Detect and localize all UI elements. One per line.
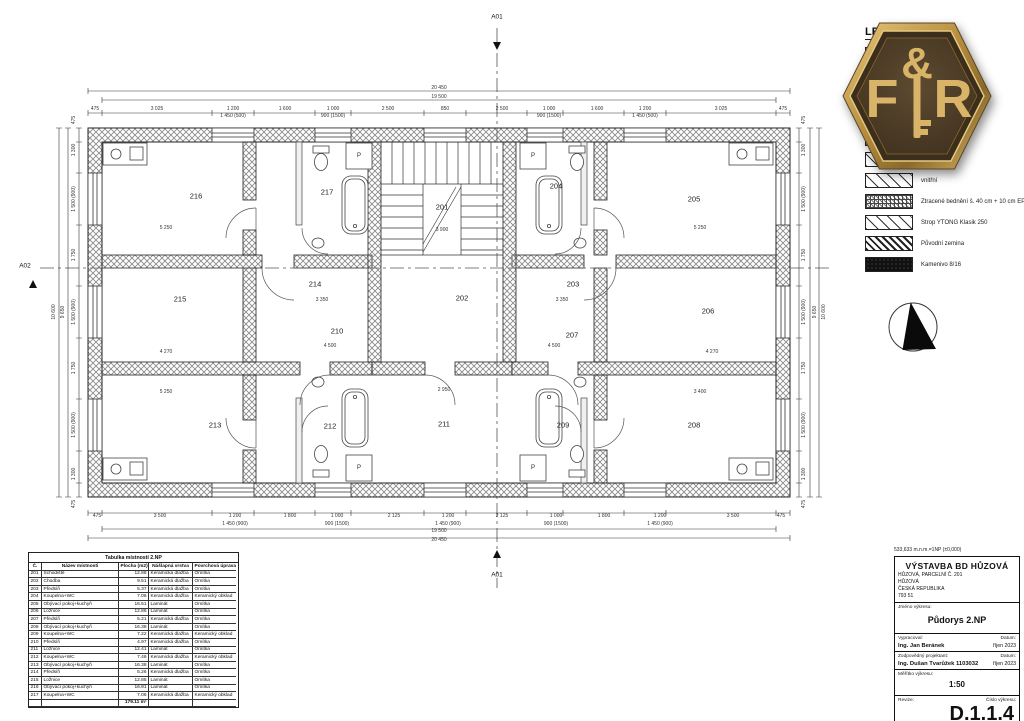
room-number-label: 214 [309,280,322,289]
hatch-swatch [865,215,913,230]
dimension-label: 1 500 (900) [71,412,77,438]
room-number-label: 203 [567,280,580,289]
dimension-label: 1 750 [801,362,807,375]
dimension-label: 1 300 [71,468,77,481]
dimension-label: 3 900 [436,227,449,233]
cell-wall-finish: Keramický obklad [193,692,236,700]
cell-floor-layer: Laminát [149,685,193,693]
washer-label: P [357,465,361,471]
table-row: 205 Obývací pokoj+kuchyň 16.51 Laminát O… [29,601,238,609]
logo-letter-r: R [934,69,973,129]
table-row: 211 Ložnice 12.41 Laminát Omítka [29,647,238,655]
room-number-label: 206 [702,307,715,316]
total-area: 179.11 m² [119,700,149,708]
logo-letter-f: F [866,69,899,129]
author-label: Vypracoval: [898,636,923,641]
drawing-page: 2162172012042052152142022032062102072132… [0,0,1024,721]
cell-number: 203 [29,586,42,594]
dimension-label: 1 600 [591,106,604,112]
washer-label: P [531,153,535,159]
cell-floor-layer: Keramická dlažba [149,654,193,662]
room-number-label: 201 [436,203,449,212]
dimension-label: 475 [777,513,785,519]
dimension-label: 3 350 [316,297,329,303]
cell-wall-finish: Omítka [193,647,236,655]
table-row: 208 Obývací pokoj+kuchyň 16.38 Laminát O… [29,624,238,632]
dimension-label: 19 500 [431,528,446,534]
hatch-swatch [865,236,913,251]
dimension-label: 3 500 [727,513,740,519]
dimension-label: 900 (1500) [544,521,568,527]
address-line: HŮZOVÁ, PARCELNÍ Č. 201 [898,572,1016,579]
legend-label: Strop YTONG Klasik 250 [921,220,987,226]
dimension-label: 1 750 [71,249,77,262]
cell-number: 214 [29,669,42,677]
dimension-label: 1 800 [598,513,611,519]
legend-label: Ztracené bednění š. 40 cm + 10 cm EPS [921,199,1024,205]
cell-wall-finish: Omítka [193,669,236,677]
dimension-label: 1 000 [327,106,340,112]
room-table-title: Tabulka místností 2.NP [29,553,238,563]
cell-room-name: Předsíň [42,616,119,624]
legend-label: Původní zemina [921,241,964,247]
dimension-label: 1 300 [801,144,807,157]
cell-number: 207 [29,616,42,624]
table-row: 207 Předsíň 5.21 Keramická dlažba Omítka [29,616,238,624]
cell-number: 216 [29,685,42,693]
table-row: 215 Ložnice 12.85 Laminát Omítka [29,677,238,685]
dimension-label: 1 500 (900) [801,186,807,212]
dimension-label: 475 [71,116,77,124]
cell-floor-layer: Keramická dlažba [149,593,193,601]
dimension-label: 1 800 [284,513,297,519]
cell-number: 205 [29,601,42,609]
room-number-label: 202 [456,294,469,303]
cell-floor-layer: Keramická dlažba [149,639,193,647]
dimension-label: 1 300 [71,144,77,157]
dimension-label: 1 450 (900) [435,521,461,527]
section-marker-a01-top: A01 [491,14,503,21]
col-area: Plocha (m2) [119,563,149,571]
dimension-label: 3 025 [151,106,164,112]
room-number-label: 216 [190,192,203,201]
cell-wall-finish: Omítka [193,624,236,632]
table-row: 213 Obývací pokoj+kuchyň 16.38 Laminát O… [29,662,238,670]
dimension-label: 475 [71,500,77,508]
cell-room-name: Ložnice [42,647,119,655]
col-floor-layer: Nášlapná vrstva [149,563,193,571]
cell-floor-layer: Keramická dlažba [149,586,193,594]
dimension-label: 4 270 [706,349,719,355]
table-row: 206 Ložnice 12.86 Laminát Omítka [29,609,238,617]
cell-floor-layer: Keramická dlažba [149,571,193,579]
cell-area: 12.41 [119,647,149,655]
revision-label: Revize: [898,698,914,703]
dimension-label: 900 (1500) [321,113,345,119]
legend-row: Kamenivo 8/16 [865,254,1021,275]
cell-wall-finish: Omítka [193,578,236,586]
cell-room-name: Koupelna+WC [42,692,119,700]
cell-floor-layer: Keramická dlažba [149,578,193,586]
cell-area: 12.86 [119,609,149,617]
washer-label: P [357,153,361,159]
legend-row: Ztracené bednění š. 40 cm + 10 cm EPS [865,191,1021,212]
cell-number: 212 [29,654,42,662]
section-marker-a01-bottom: A01 [491,572,503,579]
address-line: 793 51 [898,593,1016,600]
cell-room-name: Koupelna+WC [42,593,119,601]
cell-floor-layer: Laminát [149,601,193,609]
dimension-label: 1 450 (900) [647,521,673,527]
dimension-label: 5 250 [160,225,173,231]
dimension-label: 475 [91,106,99,112]
responsible-date: říjen 2023 [993,661,1016,667]
dimension-label: 1 750 [71,362,77,375]
dimension-label: 1 200 [227,106,240,112]
legend-row: Strop YTONG Klasik 250 [865,212,1021,233]
cell-room-name: Chodba [42,578,119,586]
dimension-label: 2 125 [388,513,401,519]
table-row: 204 Koupelna+WC 7.06 Keramická dlažba Ke… [29,593,238,601]
section-marker-a02: A02 [19,263,31,270]
cell-floor-layer: Laminát [149,662,193,670]
dimension-label: 1 450 (500) [632,113,658,119]
table-total-row: 179.11 m² [29,700,238,708]
hatch-swatch [865,173,913,188]
dimension-label: 2 500 [382,106,395,112]
room-number-label: 208 [688,421,701,430]
cell-room-name: Obývací pokoj+kuchyň [42,662,119,670]
responsible-label: Zodpovědný projektant: [898,654,948,659]
cell-floor-layer: Laminát [149,647,193,655]
dimension-label: 19 500 [431,94,446,100]
dimension-label: 20 450 [431,537,446,543]
cell-wall-finish: Omítka [193,601,236,609]
cell-area: 16.38 [119,624,149,632]
dimension-label: 900 (1500) [325,521,349,527]
legend-label: vnitřní [921,178,937,184]
dimension-label: 475 [801,116,807,124]
cell-wall-finish: Keramický obklad [193,654,236,662]
dimension-label: 10 600 [821,304,827,319]
cell-floor-layer: Laminát [149,677,193,685]
dimension-label: 2 500 [496,106,509,112]
room-number-label: 211 [438,420,450,429]
dimension-label: 1 200 [442,513,455,519]
fr-logo: F R & [842,22,992,170]
dimension-label: 1 000 [550,513,563,519]
cell-number: 209 [29,631,42,639]
cell-number: 211 [29,647,42,655]
dimension-label: 3 400 [694,389,707,395]
dimension-label: 1 500 (900) [71,299,77,325]
hatch-swatch [865,194,913,209]
dimension-label: 1 500 (900) [71,186,77,212]
cell-wall-finish: Omítka [193,685,236,693]
drawing-number: D.1.1.4 [898,703,1016,721]
dimension-label: 9 650 [60,306,66,319]
elevation-note: 533,633 m.n.m.=1NP (±0,000) [894,547,961,553]
dimension-label: 1 200 [654,513,667,519]
cell-floor-layer: Keramická dlažba [149,616,193,624]
dimension-label: 20 450 [431,85,446,91]
cell-area: 12.85 [119,677,149,685]
hatch-swatch [865,257,913,272]
cell-room-name: Obývací pokoj+kuchyň [42,601,119,609]
scale-value: 1:50 [898,677,1016,693]
dimension-label: 475 [93,513,101,519]
cell-wall-finish: Omítka [193,616,236,624]
table-row: 201 Schodiště 12.88 Keramická dlažba Omí… [29,571,238,579]
cell-wall-finish: Omítka [193,609,236,617]
dimension-label: 1 300 [801,468,807,481]
room-table-header: Č. Název místnosti Plocha (m2) Nášlapná … [29,563,238,571]
cell-room-name: Ložnice [42,677,119,685]
cell-area: 7.22 [119,631,149,639]
responsible-name: Ing. Dušan Tvarůžek 1103032 [898,661,978,667]
room-number-label: 204 [550,182,563,191]
dimension-label: 5 250 [694,225,707,231]
cell-wall-finish: Omítka [193,571,236,579]
cell-floor-layer: Laminát [149,624,193,632]
room-table: Tabulka místností 2.NP Č. Název místnost… [28,552,239,708]
dimension-label: 2 125 [496,513,509,519]
cell-room-name: Koupelna+WC [42,654,119,662]
dimension-label: 1 000 [331,513,344,519]
cell-area: 9.51 [119,578,149,586]
dimension-label: 1 500 (900) [801,412,807,438]
cell-area: 5.21 [119,616,149,624]
dimension-label: 475 [779,106,787,112]
cell-area: 5.37 [119,586,149,594]
dimension-label: 1 600 [279,106,292,112]
cell-wall-finish: Omítka [193,586,236,594]
table-row: 209 Koupelna+WC 7.22 Keramická dlažba Ke… [29,631,238,639]
cell-floor-layer: Keramická dlažba [149,631,193,639]
dimension-label: 9 650 [812,306,818,319]
dimension-label: 3 500 [154,513,167,519]
cell-room-name: Obývací pokoj+kuchyň [42,624,119,632]
table-row: 214 Předsíň 5.26 Keramická dlažba Omítka [29,669,238,677]
dimension-label: 1 450 (900) [222,521,248,527]
cell-area: 16.91 [119,685,149,693]
table-row: 210 Předsíň 4.97 Keramická dlažba Omítka [29,639,238,647]
cell-number: 208 [29,624,42,632]
cell-room-name: Předsíň [42,669,119,677]
room-number-label: 217 [321,188,334,197]
dimension-label: 900 (1500) [537,113,561,119]
dimension-label: 850 [441,106,449,112]
cell-number: 213 [29,662,42,670]
table-row: 217 Koupelna+WC 7.06 Keramická dlažba Ke… [29,692,238,700]
dimension-label: 1 200 [229,513,242,519]
legend-row: vnitřní [865,170,1021,191]
dimension-label: 1 000 [543,106,556,112]
dimension-label: 3 350 [556,297,569,303]
dimension-label: 10 600 [51,304,57,319]
project-title: VÝSTAVBA BD HŮZOVÁ [898,559,1016,572]
cell-area: 5.26 [119,669,149,677]
address-line: ČESKÁ REPUBLIKA [898,586,1016,593]
legend-row: Původní zemina [865,233,1021,254]
cell-number: 201 [29,571,42,579]
cell-room-name: Předsíň [42,586,119,594]
room-number-label: 210 [331,327,344,336]
dimension-label: 475 [801,500,807,508]
cell-area: 16.38 [119,662,149,670]
cell-area: 7.06 [119,593,149,601]
washer-label: P [531,465,535,471]
cell-wall-finish: Omítka [193,639,236,647]
north-arrow-icon [884,298,942,356]
cell-area: 7.46 [119,654,149,662]
table-row: 216 Obývací pokoj+kuchyň 16.91 Laminát O… [29,685,238,693]
cell-area: 16.51 [119,601,149,609]
author-name: Ing. Jan Beránek [898,643,944,649]
dimension-label: 1 750 [801,249,807,262]
cell-wall-finish: Keramický obklad [193,631,236,639]
table-row: 203 Předsíň 5.37 Keramická dlažba Omítka [29,586,238,594]
table-row: 202 Chodba 9.51 Keramická dlažba Omítka [29,578,238,586]
author-date: říjen 2023 [993,643,1016,649]
address-line: HŮZOVÁ [898,579,1016,586]
cell-number: 210 [29,639,42,647]
cell-area: 12.88 [119,571,149,579]
cell-floor-layer: Keramická dlažba [149,669,193,677]
dimension-label: 4 270 [160,349,173,355]
cell-number: 215 [29,677,42,685]
date-label: Datum: [1001,654,1016,659]
cell-number: 204 [29,593,42,601]
cell-room-name: Obývací pokoj+kuchyň [42,685,119,693]
dimension-label: 1 450 (500) [220,113,246,119]
room-number-label: 209 [557,421,570,430]
project-address: HŮZOVÁ, PARCELNÍ Č. 201 HŮZOVÁ ČESKÁ REP… [898,572,1016,600]
table-row: 212 Koupelna+WC 7.46 Keramická dlažba Ke… [29,654,238,662]
dimension-label: 4 500 [548,343,561,349]
title-block: VÝSTAVBA BD HŮZOVÁ HŮZOVÁ, PARCELNÍ Č. 2… [894,556,1020,721]
col-room-name: Název místnosti [42,563,119,571]
cell-number: 217 [29,692,42,700]
cell-wall-finish: Keramický obklad [193,593,236,601]
date-label: Datum: [1001,636,1016,641]
cell-number: 202 [29,578,42,586]
cell-room-name: Předsíň [42,639,119,647]
col-wall-finish: Povrchová úprava zdí [193,563,236,571]
dimension-label: 1 200 [639,106,652,112]
cell-room-name: Ložnice [42,609,119,617]
room-number-label: 215 [174,295,187,304]
cell-wall-finish: Omítka [193,677,236,685]
cell-number: 206 [29,609,42,617]
cell-room-name: Koupelna+WC [42,631,119,639]
legend-label: Kamenivo 8/16 [921,262,961,268]
dimension-label: 3 025 [715,106,728,112]
room-number-label: 213 [209,421,222,430]
cell-floor-layer: Laminát [149,609,193,617]
dimension-label: 1 500 (900) [801,299,807,325]
cell-area: 4.97 [119,639,149,647]
dimension-label: 5 250 [160,389,173,395]
room-number-label: 205 [688,195,701,204]
room-number-label: 207 [566,331,579,340]
cell-wall-finish: Omítka [193,662,236,670]
dimension-label: 4 500 [324,343,337,349]
cell-floor-layer: Keramická dlažba [149,692,193,700]
room-number-label: 212 [324,422,337,431]
cell-area: 7.06 [119,692,149,700]
col-number: Č. [29,563,42,571]
cell-room-name: Schodiště [42,571,119,579]
drawing-name: Půdorys 2.NP [898,610,1016,631]
dimension-label: 2 950 [438,387,451,393]
